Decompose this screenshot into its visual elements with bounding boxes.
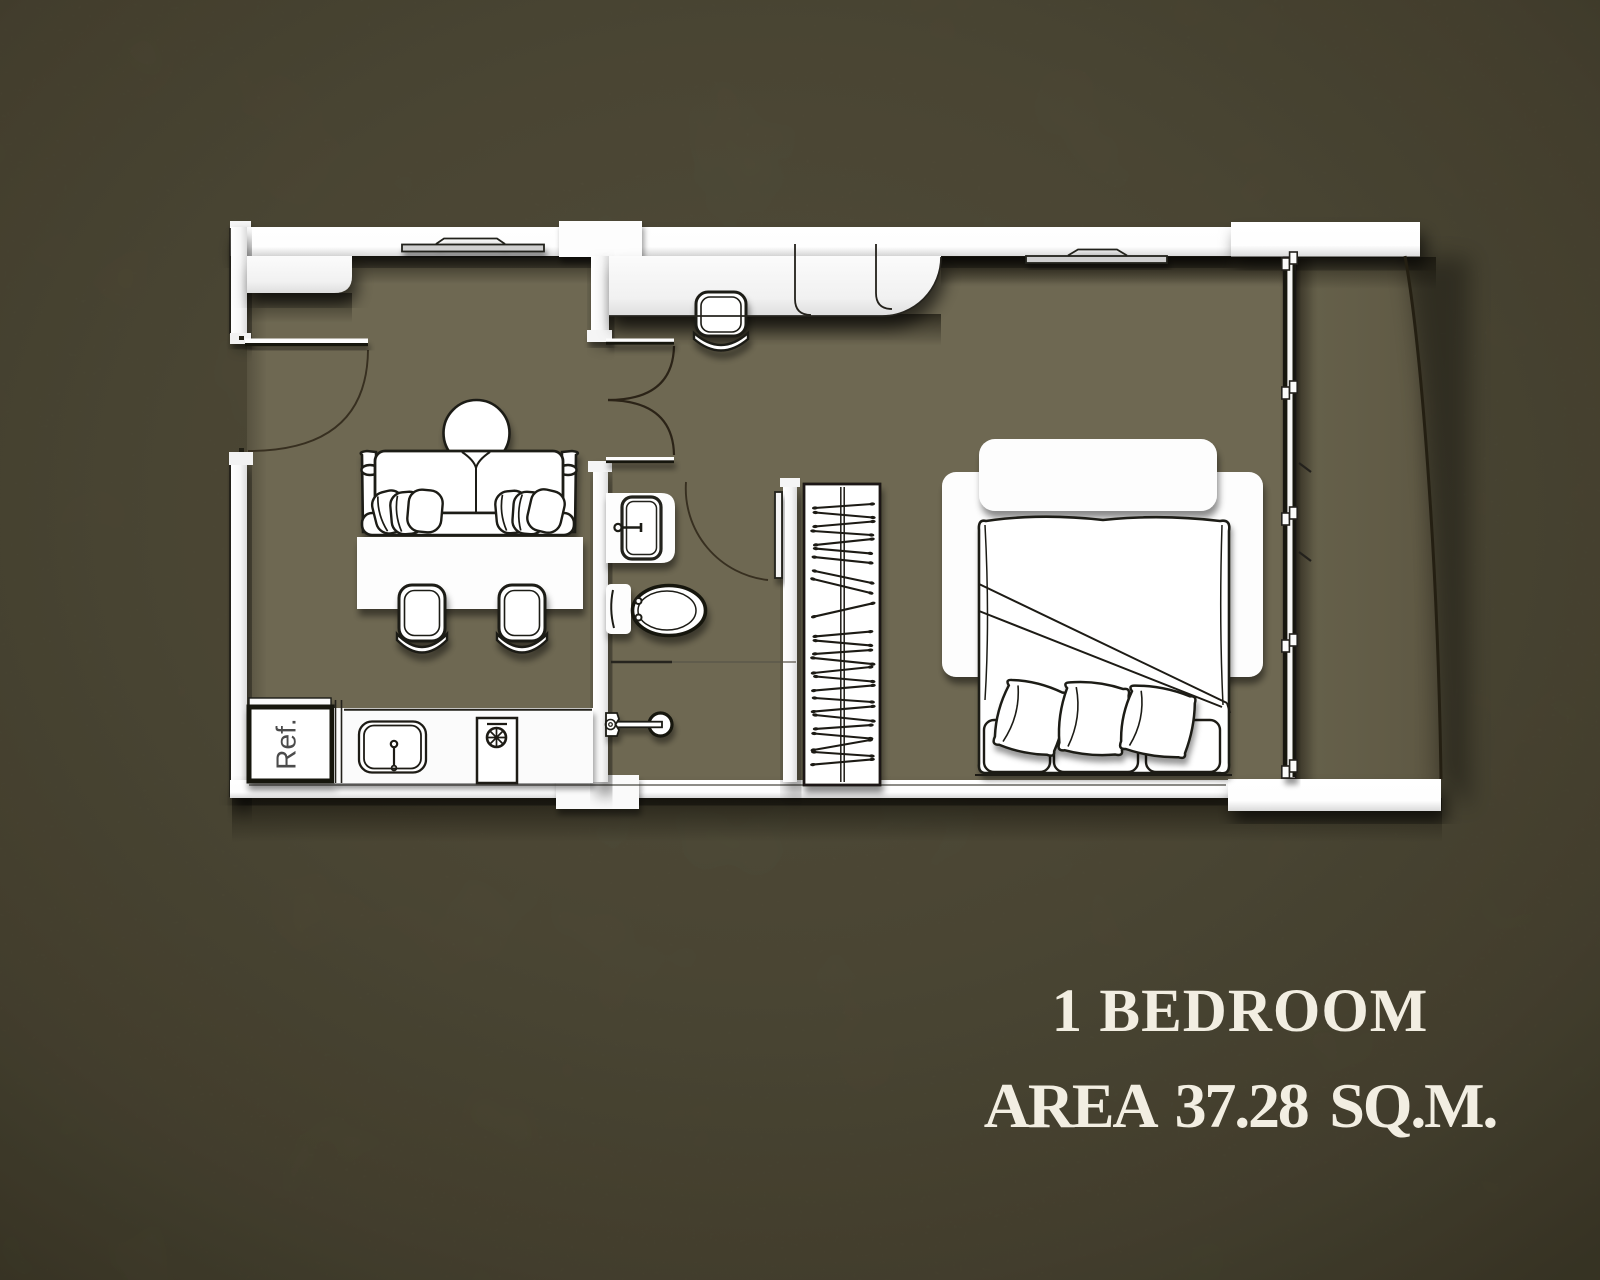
svg-text:1 BEDROOM: 1 BEDROOM: [1052, 978, 1429, 1045]
svg-text:AREA 37.28 SQ.M.: AREA 37.28 SQ.M.: [984, 1070, 1497, 1141]
svg-text:Ref.: Ref.: [271, 718, 302, 769]
